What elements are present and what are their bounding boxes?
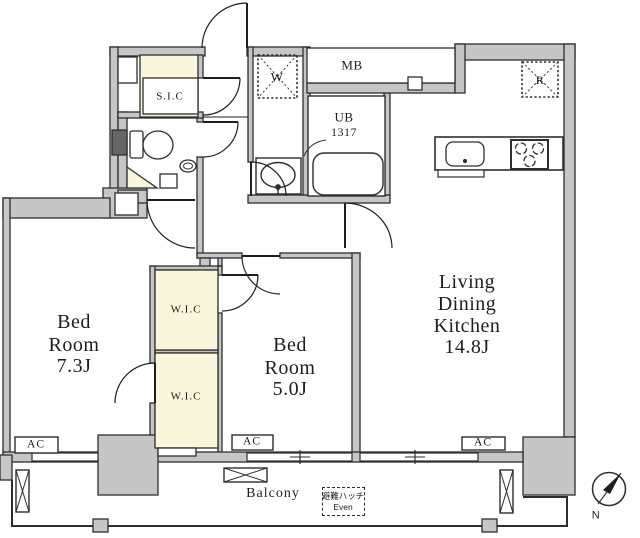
ldk-label-size: 14.8J xyxy=(444,337,489,357)
bedroom1-label-line2: Room xyxy=(49,335,100,355)
bedroom2-label-line2: Room xyxy=(265,358,316,378)
wall-niche xyxy=(115,193,138,215)
balcony-post-right xyxy=(482,519,497,532)
shoe-closet-door xyxy=(203,78,240,115)
wic-upper-label: W.I.C xyxy=(171,305,202,316)
wic-lower-door xyxy=(115,363,155,403)
ac-label-middle: AC xyxy=(243,436,261,448)
toilet-icon xyxy=(127,131,196,188)
partition-panel-left xyxy=(16,470,29,512)
evacuation-hatch xyxy=(224,468,267,482)
wic-bottom-slot xyxy=(158,448,196,456)
washer-label: W xyxy=(271,71,284,84)
meter-box-small xyxy=(408,77,422,90)
ac-label-right: AC xyxy=(474,437,492,449)
partition-panel-right xyxy=(500,470,513,513)
toilet-door xyxy=(203,122,238,157)
counter-lip xyxy=(438,170,484,177)
floor-plan: S.I.C W MB UB 1317 R Living Dining Kitch… xyxy=(0,0,640,538)
walls xyxy=(0,44,575,495)
toilet-counter xyxy=(160,174,177,188)
bedroom1-door xyxy=(147,200,195,248)
bedroom1-label-size: 7.3J xyxy=(57,356,92,376)
meter-box-label: MB xyxy=(341,59,362,72)
wic-upper-door xyxy=(222,275,258,311)
toilet-door-fold xyxy=(127,167,157,188)
bedroom1-label-line1: Bed xyxy=(57,312,91,332)
evacuation-hatch-sub: Even xyxy=(333,503,352,512)
toilet-hand-basin xyxy=(180,160,196,172)
compass-icon xyxy=(593,473,626,506)
bedroom2-label-line1: Bed xyxy=(273,335,307,355)
ac-label-left: AC xyxy=(27,439,45,451)
evacuation-hatch-label: 避難ハッチ xyxy=(322,492,365,501)
bedroom2-label-size: 5.0J xyxy=(273,379,308,399)
closet-floors xyxy=(140,55,218,448)
entrance-door xyxy=(202,3,247,48)
balcony-post-left xyxy=(93,519,108,532)
kitchen-counter-icon xyxy=(435,137,563,177)
ldk-label-line1: Living xyxy=(439,272,495,292)
balcony-label: Balcony xyxy=(246,487,300,501)
shoe-closet-label: S.I.C xyxy=(156,92,184,103)
ldk-label-line2: Dining xyxy=(438,294,497,314)
meter-box-area xyxy=(307,48,455,83)
ldk-label-line3: Kitchen xyxy=(434,316,501,336)
bathtub-icon xyxy=(313,153,383,195)
wic-lower-label: W.I.C xyxy=(171,392,202,403)
unit-bath-size: 1317 xyxy=(331,126,357,138)
ldk-door xyxy=(345,203,392,248)
unit-bath-label: UB xyxy=(334,111,353,124)
pipe-shaft xyxy=(112,130,127,155)
north-label: N xyxy=(592,511,600,522)
pipe-space-niche xyxy=(118,57,137,83)
refrigerator-label: R xyxy=(536,74,545,86)
bedroom1-window xyxy=(32,453,98,461)
